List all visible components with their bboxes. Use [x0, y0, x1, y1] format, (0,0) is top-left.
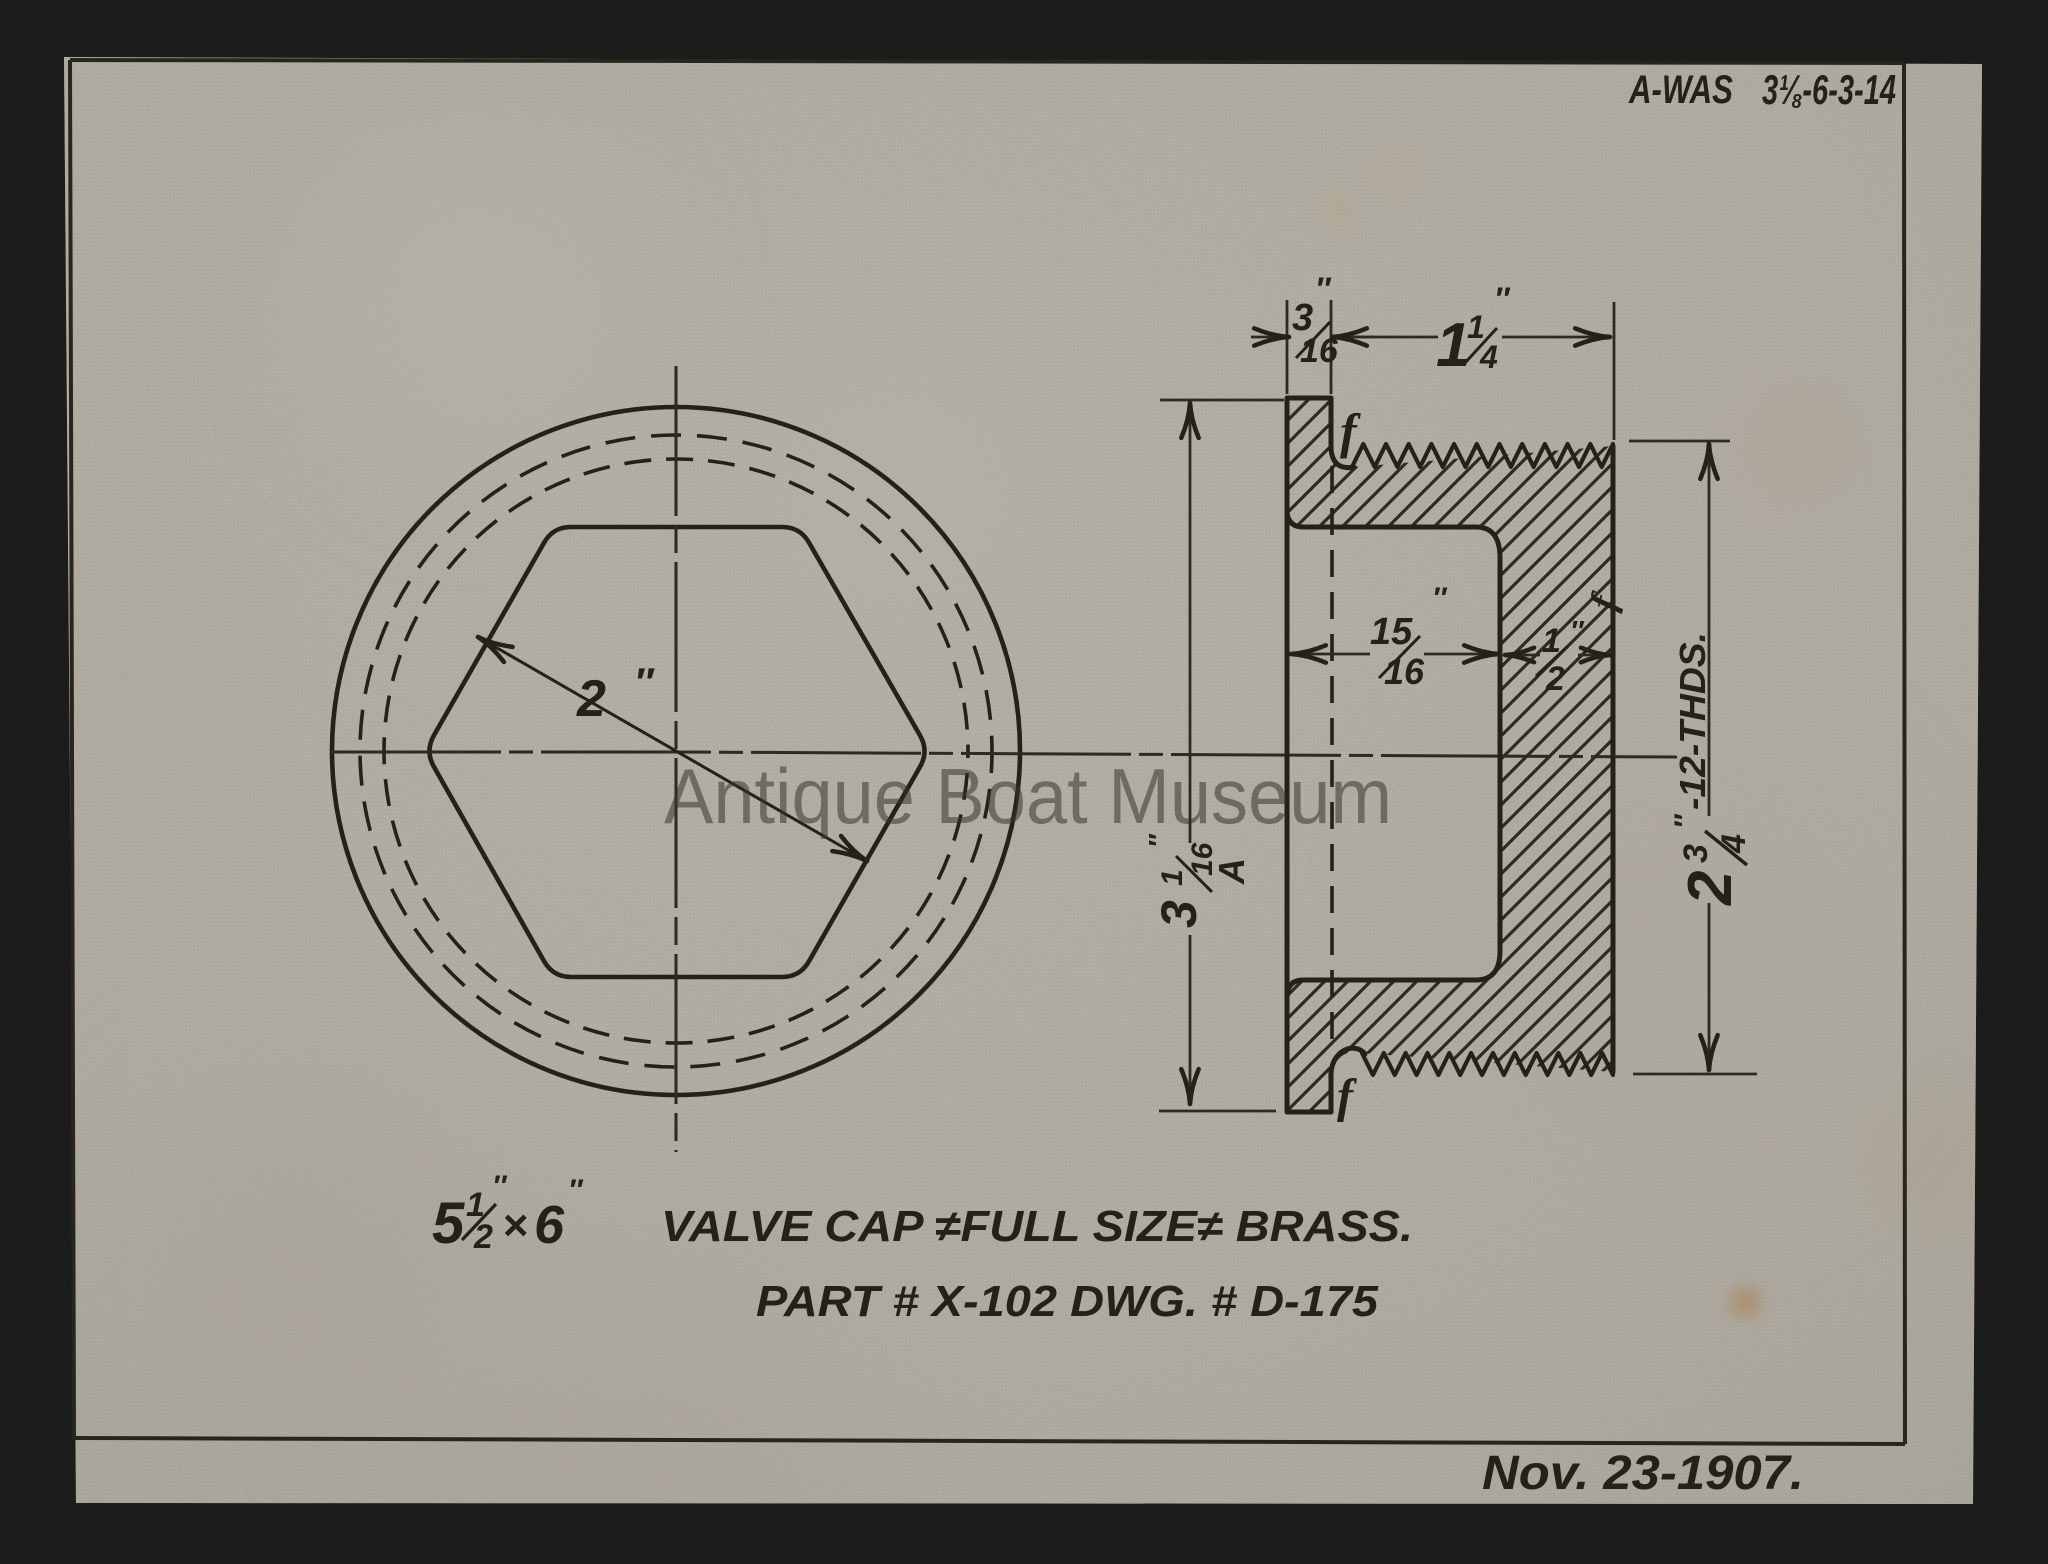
svg-text:×: × — [502, 1201, 528, 1250]
svg-text:2: 2 — [473, 1218, 493, 1256]
svg-text:″: ″ — [1494, 281, 1511, 317]
svg-text:1: 1 — [1436, 311, 1470, 380]
svg-text:2: 2 — [1676, 871, 1745, 906]
svg-text:A-WAS: A-WAS — [1628, 68, 1733, 112]
svg-text:3⅛-6-3-14: 3⅛-6-3-14 — [1762, 66, 1896, 113]
svg-text:Antique Boat Museum: Antique Boat Museum — [664, 752, 1392, 840]
svg-text:A: A — [1211, 858, 1252, 885]
svg-text:2: 2 — [576, 670, 606, 728]
svg-text:″: ″ — [568, 1174, 584, 1207]
svg-text:2: 2 — [1545, 660, 1565, 698]
svg-text:″: ″ — [1315, 271, 1332, 307]
svg-text:VALVE CAP ≠FULL SIZE≠ BRASS.: VALVE CAP ≠FULL SIZE≠ BRASS. — [661, 1202, 1413, 1251]
svg-text:16: 16 — [1300, 332, 1339, 370]
svg-text:Nov. 23-1907.: Nov. 23-1907. — [1482, 1447, 1804, 1500]
svg-text:″: ″ — [492, 1170, 508, 1203]
svg-text:″: ″ — [634, 661, 655, 705]
svg-text:4: 4 — [1715, 834, 1753, 854]
svg-text:″: ″ — [1432, 582, 1448, 615]
svg-text:-12-THDS.: -12-THDS. — [1672, 632, 1713, 810]
svg-text:″: ″ — [1570, 615, 1585, 646]
svg-text:15: 15 — [1370, 611, 1413, 653]
svg-text:″: ″ — [1669, 813, 1702, 829]
svg-text:3: 3 — [1677, 844, 1715, 863]
svg-text:PART # X-102 DWG. # D-175: PART # X-102 DWG. # D-175 — [756, 1277, 1379, 1326]
svg-text:6: 6 — [534, 1195, 565, 1255]
svg-text:16: 16 — [1384, 651, 1425, 692]
svg-text:5: 5 — [432, 1191, 465, 1256]
svg-text:1: 1 — [1156, 869, 1189, 886]
svg-text:4: 4 — [1479, 339, 1498, 375]
svg-text:3: 3 — [1151, 900, 1207, 928]
